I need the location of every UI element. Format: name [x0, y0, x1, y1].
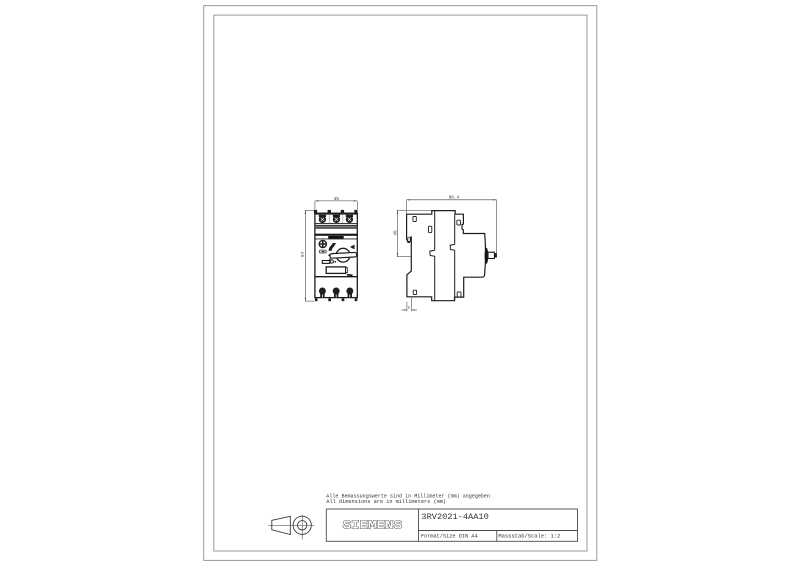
svg-text:All dimensions are in millimet: All dimensions are in millimeters (mm) [326, 499, 446, 505]
svg-text:5: 5 [408, 306, 410, 310]
svg-text:3RV2021-4AA10: 3RV2021-4AA10 [421, 513, 489, 522]
svg-text:97: 97 [300, 251, 306, 257]
svg-text:45: 45 [394, 230, 399, 236]
svg-text:Massstab/Scale: 1:2: Massstab/Scale: 1:2 [498, 534, 560, 540]
svg-text:SIEMENS: SIEMENS [343, 518, 403, 532]
svg-text:96.4: 96.4 [449, 195, 460, 200]
svg-text:45: 45 [333, 196, 339, 202]
svg-text:Format/Size DIN A4: Format/Size DIN A4 [421, 534, 478, 540]
